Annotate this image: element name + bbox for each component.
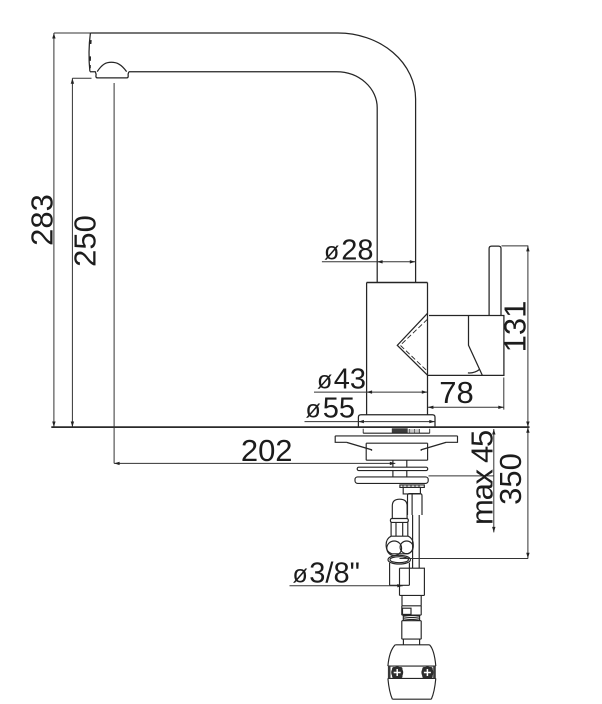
svg-text:131: 131 [498,301,533,353]
svg-text:350: 350 [493,453,528,505]
svg-text:250: 250 [67,215,102,267]
svg-text:ø28: ø28 [324,235,374,267]
svg-text:ø3/8": ø3/8" [293,558,360,590]
svg-text:ø43: ø43 [317,364,366,396]
svg-text:ø55: ø55 [306,393,356,425]
svg-text:283: 283 [25,194,60,246]
svg-text:202: 202 [241,433,293,468]
svg-text:78: 78 [439,375,473,410]
